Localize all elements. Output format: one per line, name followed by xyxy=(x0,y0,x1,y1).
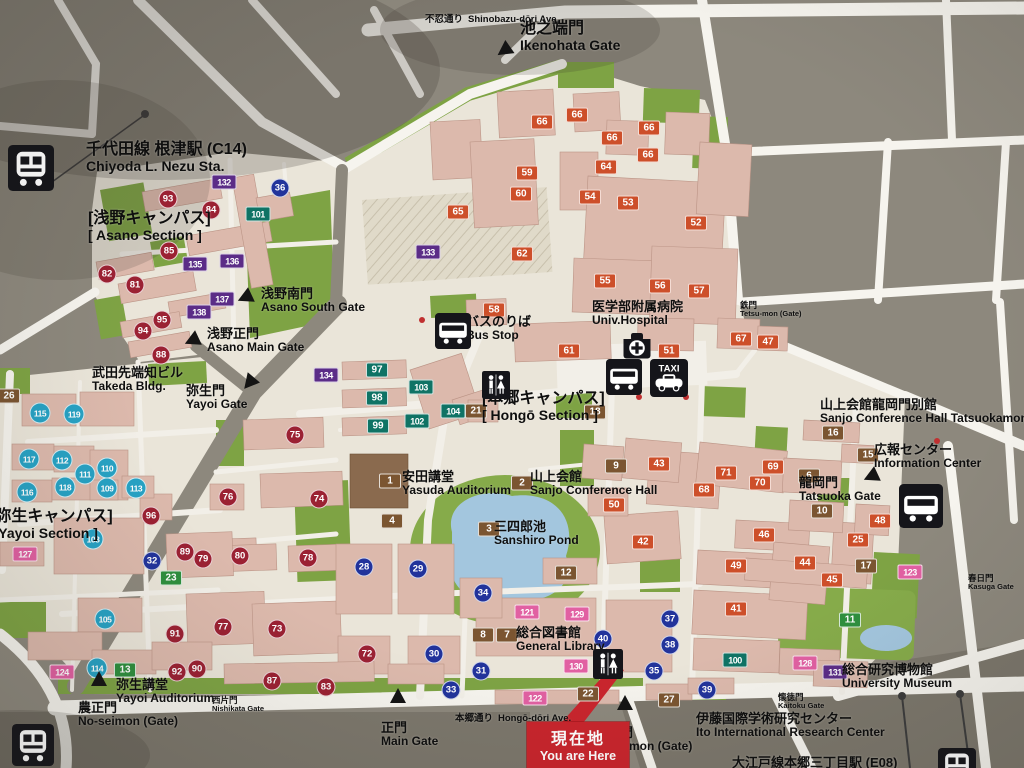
label-nishikata-gate-en: Nishikata Gate xyxy=(212,705,264,713)
building-badge-39: 39 xyxy=(698,681,717,700)
restroom-icon xyxy=(593,649,623,679)
building-badge-96: 96 xyxy=(142,507,161,526)
building-badge-67: 67 xyxy=(730,332,752,347)
building-badge-119: 119 xyxy=(64,404,85,425)
building-badge-115: 115 xyxy=(30,403,51,424)
map-overlay: 1234678910121516171821222627111323254142… xyxy=(0,0,1024,768)
gate-marker-asano-main xyxy=(181,330,201,351)
building-badge-79: 79 xyxy=(194,550,213,569)
label-ito-center-en: Ito International Research Center xyxy=(696,726,885,739)
label-no-seimon-en: No-seimon (Gate) xyxy=(78,715,178,728)
gate-marker-main xyxy=(390,688,406,703)
building-badge-81: 81 xyxy=(126,276,145,295)
building-badge-101: 101 xyxy=(246,207,271,222)
building-badge-31: 31 xyxy=(472,662,491,681)
you-are-here-marker: 現在地 You are Here xyxy=(527,722,629,768)
building-badge-54: 54 xyxy=(579,190,601,205)
building-badge-110: 110 xyxy=(97,458,118,479)
label-yayoi-section-jp: [弥生キャンパス] xyxy=(0,508,113,526)
building-badge-30: 30 xyxy=(425,645,444,664)
building-badge-82: 82 xyxy=(98,265,117,284)
building-badge-45: 45 xyxy=(821,573,843,588)
building-badge-116: 116 xyxy=(17,482,38,503)
building-badge-127: 127 xyxy=(13,547,38,562)
building-badge-103: 103 xyxy=(409,380,434,395)
building-badge-33: 33 xyxy=(442,681,461,700)
restroom-icon xyxy=(482,371,510,399)
building-badge-26: 26 xyxy=(0,389,20,404)
building-badge-64: 64 xyxy=(595,160,617,175)
building-badge-35: 35 xyxy=(645,662,664,681)
gate-marker-akamon xyxy=(617,695,633,710)
building-badge-87: 87 xyxy=(263,672,282,691)
train-icon xyxy=(12,724,54,766)
building-badge-136: 136 xyxy=(220,254,245,269)
label-sanjo-hall-en: Sanjo Conference Hall xyxy=(530,484,657,497)
building-badge-97: 97 xyxy=(366,363,388,378)
building-badge-135: 135 xyxy=(183,257,208,272)
label-kaitoku-gate-en: Kaitoku Gate xyxy=(778,702,824,710)
building-badge-121: 121 xyxy=(515,605,540,620)
building-badge-88: 88 xyxy=(152,346,171,365)
building-badge-100: 100 xyxy=(723,653,748,668)
building-badge-66: 66 xyxy=(637,148,659,163)
label-info-center: 広報センターInformation Center xyxy=(874,443,981,470)
building-badge-80: 80 xyxy=(231,547,250,566)
you-are-here-en: You are Here xyxy=(527,749,629,763)
building-badge-70: 70 xyxy=(749,476,771,491)
label-kasuga-gate: 春日門Kasuga Gate xyxy=(968,574,1014,592)
label-yasuda-auditorium-en: Yasuda Auditorium xyxy=(402,484,511,497)
label-shinobazu-ave-jp: 不忍通り xyxy=(425,14,463,25)
building-badge-53: 53 xyxy=(617,196,639,211)
building-badge-74: 74 xyxy=(310,490,329,509)
label-ito-center: 伊藤国際学術研究センターIto International Research C… xyxy=(696,712,885,739)
label-univ-hospital: 医学部附属病院Univ.Hospital xyxy=(592,300,683,327)
building-badge-22: 22 xyxy=(577,687,599,702)
label-main-gate-en: Main Gate xyxy=(381,735,438,748)
label-ikenohata-gate: 池之端門Ikenohata Gate xyxy=(520,20,620,53)
building-badge-134: 134 xyxy=(314,368,339,383)
building-badge-56: 56 xyxy=(649,279,671,294)
label-nezu-station: 千代田線 根津駅 (C14)Chiyoda L. Nezu Sta. xyxy=(86,141,247,174)
building-badge-128: 128 xyxy=(793,656,818,671)
gate-marker-ikenohata xyxy=(493,40,514,62)
label-tetsu-mon: 鉄門Tetsu-mon (Gate) xyxy=(740,301,802,319)
building-badge-129: 129 xyxy=(565,607,590,622)
building-badge-102: 102 xyxy=(405,414,430,429)
train-icon xyxy=(8,145,54,191)
building-badge-44: 44 xyxy=(794,556,816,571)
building-badge-77: 77 xyxy=(214,618,233,637)
taxi-icon: TAXI xyxy=(650,359,688,397)
building-badge-51: 51 xyxy=(658,344,680,359)
building-badge-99: 99 xyxy=(367,419,389,434)
label-asano-section-en: [ Asano Section ] xyxy=(88,228,211,243)
bus-stop-icon xyxy=(435,313,471,349)
label-univ-hospital-en: Univ.Hospital xyxy=(592,314,683,327)
building-badge-132: 132 xyxy=(212,175,237,190)
building-badge-36: 36 xyxy=(271,179,290,198)
label-info-center-en: Information Center xyxy=(874,457,981,470)
building-badge-50: 50 xyxy=(603,498,625,513)
building-badge-68: 68 xyxy=(693,483,715,498)
label-university-museum-en: University Museum xyxy=(842,677,952,690)
building-badge-8: 8 xyxy=(472,628,494,643)
you-are-here-jp: 現在地 xyxy=(527,725,629,749)
label-asano-section: [浅野キャンパス][ Asano Section ] xyxy=(88,210,211,243)
building-badge-118: 118 xyxy=(55,477,76,498)
building-badge-117: 117 xyxy=(19,449,40,470)
building-badge-105: 105 xyxy=(95,609,116,630)
building-badge-11: 11 xyxy=(839,613,861,628)
hospital-icon xyxy=(619,327,655,363)
label-takeda-bldg: 武田先端知ビルTakeda Bldg. xyxy=(92,366,183,393)
label-bus-stop: バスのりばBus Stop xyxy=(466,315,531,342)
label-university-museum: 総合研究博物館University Museum xyxy=(842,663,952,690)
building-badge-89: 89 xyxy=(176,543,195,562)
label-yayoi-gate: 弥生門Yayoi Gate xyxy=(186,384,247,411)
label-ikenohata-gate-en: Ikenohata Gate xyxy=(520,38,620,53)
label-takeda-bldg-en: Takeda Bldg. xyxy=(92,380,183,393)
label-asano-south-gate-en: Asano South Gate xyxy=(261,301,365,314)
label-main-gate: 正門Main Gate xyxy=(381,721,438,748)
building-badge-66: 66 xyxy=(601,131,623,146)
building-badge-85: 85 xyxy=(160,242,179,261)
building-badge-61: 61 xyxy=(558,344,580,359)
label-general-library: 総合図書館General Library xyxy=(516,626,605,653)
label-oedo-station-jp: 大江戸線本郷三丁目駅 (E08) xyxy=(732,756,897,768)
building-badge-66: 66 xyxy=(638,121,660,136)
building-badge-49: 49 xyxy=(725,559,747,574)
building-badge-52: 52 xyxy=(685,216,707,231)
label-yasuda-auditorium: 安田講堂Yasuda Auditorium xyxy=(402,470,511,497)
building-badge-65: 65 xyxy=(447,205,469,220)
label-nezu-station-en: Chiyoda L. Nezu Sta. xyxy=(86,159,247,174)
building-badge-93: 93 xyxy=(159,190,178,209)
bus-icon xyxy=(606,359,642,395)
building-badge-47: 47 xyxy=(757,335,779,350)
label-hongo-section-en: [ Hongō Section ] xyxy=(482,408,605,423)
campus-map-photo: 1234678910121516171821222627111323254142… xyxy=(0,0,1024,768)
building-badge-98: 98 xyxy=(366,391,388,406)
building-badge-17: 17 xyxy=(855,559,877,574)
building-badge-138: 138 xyxy=(187,305,212,320)
building-badge-13: 13 xyxy=(114,663,136,678)
label-asano-south-gate: 浅野南門Asano South Gate xyxy=(261,287,365,314)
building-badge-34: 34 xyxy=(474,584,493,603)
building-badge-73: 73 xyxy=(268,620,287,639)
building-badge-62: 62 xyxy=(511,247,533,262)
label-tetsu-mon-en: Tetsu-mon (Gate) xyxy=(740,310,802,318)
label-yayoi-gate-en: Yayoi Gate xyxy=(186,398,247,411)
building-badge-66: 66 xyxy=(566,108,588,123)
building-badge-60: 60 xyxy=(510,187,532,202)
label-sanjo-tatsuokamon-en: Sanjo Conference Hall Tatsuokamon xyxy=(820,412,1024,425)
label-kasuga-gate-en: Kasuga Gate xyxy=(968,583,1014,591)
building-badge-137: 137 xyxy=(210,292,235,307)
building-badge-71: 71 xyxy=(715,466,737,481)
label-ikenohata-gate-jp: 池之端門 xyxy=(520,20,620,38)
label-oedo-station: 大江戸線本郷三丁目駅 (E08) xyxy=(732,756,897,768)
label-yayoi-section-en: [ Yayoi Section ] xyxy=(0,526,113,541)
building-badge-10: 10 xyxy=(811,504,833,519)
building-badge-90: 90 xyxy=(188,660,207,679)
building-badge-23: 23 xyxy=(160,571,182,586)
label-general-library-en: General Library xyxy=(516,640,605,653)
building-badge-95: 95 xyxy=(153,311,172,330)
building-badge-57: 57 xyxy=(688,284,710,299)
bus-icon xyxy=(899,484,943,528)
building-badge-42: 42 xyxy=(632,535,654,550)
label-sanjo-hall: 山上会館Sanjo Conference Hall xyxy=(530,470,657,497)
building-badge-12: 12 xyxy=(555,566,577,581)
building-badge-122: 122 xyxy=(523,691,548,706)
gate-marker-no-seimon xyxy=(91,671,107,686)
label-hongo-ave-jp: 本郷通り xyxy=(455,713,493,724)
label-sanjo-tatsuokamon: 山上会館龍岡門別館Sanjo Conference Hall Tatsuokam… xyxy=(820,398,1024,425)
building-badge-16: 16 xyxy=(822,426,844,441)
building-badge-75: 75 xyxy=(286,426,305,445)
building-badge-76: 76 xyxy=(219,488,238,507)
building-badge-78: 78 xyxy=(299,549,318,568)
label-asano-main-gate: 浅野正門Asano Main Gate xyxy=(207,327,304,354)
building-badge-27: 27 xyxy=(658,693,680,708)
label-no-seimon: 農正門No-seimon (Gate) xyxy=(78,701,178,728)
building-badge-69: 69 xyxy=(762,460,784,475)
building-badge-55: 55 xyxy=(594,274,616,289)
label-asano-main-gate-en: Asano Main Gate xyxy=(207,341,304,354)
building-badge-25: 25 xyxy=(847,533,869,548)
building-badge-91: 91 xyxy=(166,625,185,644)
building-badge-29: 29 xyxy=(409,560,428,579)
building-badge-112: 112 xyxy=(52,450,73,471)
building-badge-59: 59 xyxy=(516,166,538,181)
building-badge-32: 32 xyxy=(143,552,162,571)
building-badge-123: 123 xyxy=(898,565,923,580)
building-badge-94: 94 xyxy=(134,322,153,341)
building-badge-111: 111 xyxy=(75,464,96,485)
building-badge-124: 124 xyxy=(50,665,75,680)
building-badge-28: 28 xyxy=(355,558,374,577)
building-badge-48: 48 xyxy=(869,514,891,529)
building-badge-66: 66 xyxy=(531,115,553,130)
building-badge-1: 1 xyxy=(379,474,401,489)
label-tatsuoka-gate-en: Tatsuoka Gate xyxy=(799,490,881,503)
label-nishikata-gate: 西片門Nishikata Gate xyxy=(212,696,264,714)
building-badge-109: 109 xyxy=(97,478,118,499)
gate-marker-asano-south xyxy=(234,287,254,308)
label-asano-section-jp: [浅野キャンパス] xyxy=(88,210,211,228)
building-badge-113: 113 xyxy=(126,478,147,499)
building-badge-7: 7 xyxy=(496,628,518,643)
building-badge-130: 130 xyxy=(564,659,589,674)
building-badge-133: 133 xyxy=(416,245,441,260)
building-badge-104: 104 xyxy=(441,404,466,419)
building-badge-4: 4 xyxy=(381,514,403,529)
label-sanshiro-pond: 三四郎池Sanshiro Pond xyxy=(494,520,579,547)
train-icon xyxy=(938,748,976,768)
building-badge-38: 38 xyxy=(661,636,680,655)
building-badge-37: 37 xyxy=(661,610,680,629)
label-yayoi-section: [弥生キャンパス][ Yayoi Section ] xyxy=(0,508,113,541)
building-badge-83: 83 xyxy=(317,678,336,697)
building-badge-41: 41 xyxy=(725,602,747,617)
label-bus-stop-en: Bus Stop xyxy=(466,329,531,342)
label-nezu-station-jp: 千代田線 根津駅 (C14) xyxy=(86,141,247,159)
svg-text:TAXI: TAXI xyxy=(659,364,680,375)
building-badge-46: 46 xyxy=(753,528,775,543)
label-sanshiro-pond-en: Sanshiro Pond xyxy=(494,534,579,547)
building-badge-72: 72 xyxy=(358,645,377,664)
label-kaitoku-gate: 懐徳門Kaitoku Gate xyxy=(778,693,824,711)
